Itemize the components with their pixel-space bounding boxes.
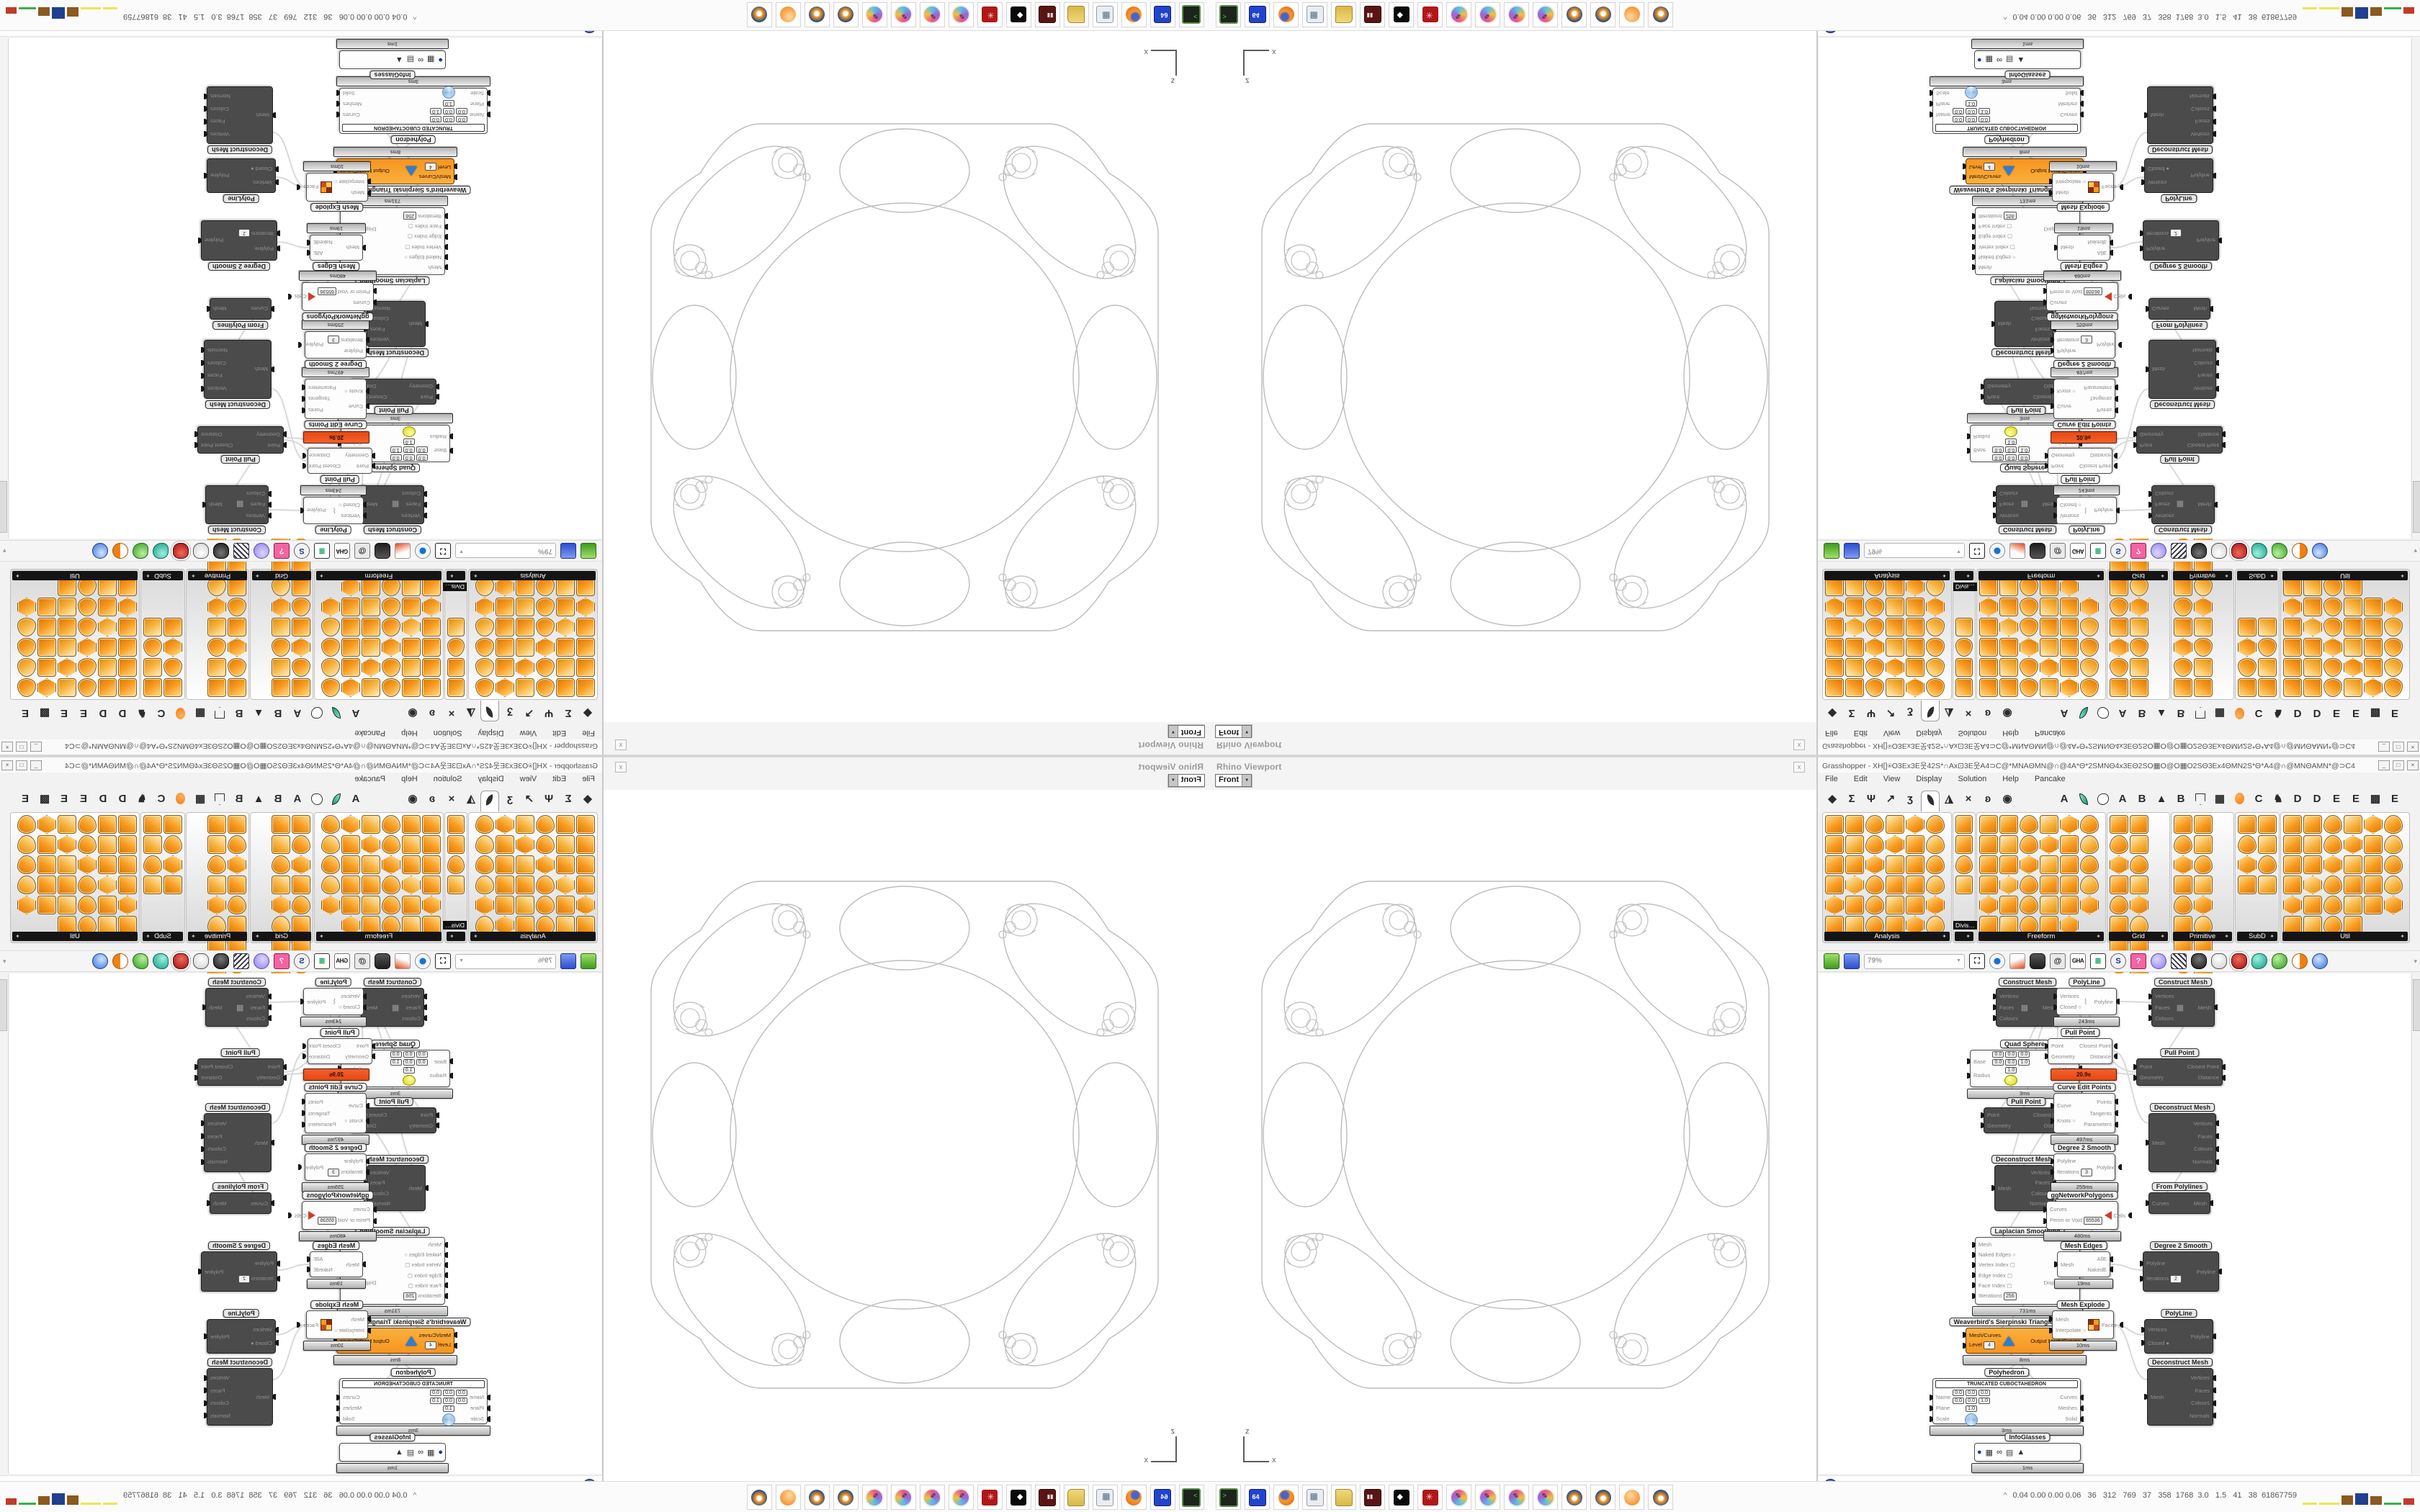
component-icon[interactable] (1926, 815, 1945, 834)
output-grip[interactable] (298, 1164, 302, 1170)
taskbar-app-blender[interactable] (833, 2, 859, 27)
component-icon[interactable] (143, 835, 162, 854)
component-body[interactable]: VerticesClosed ○⌇Polyline (2056, 988, 2117, 1015)
input-param[interactable]: Vertices (2155, 993, 2174, 999)
value-box[interactable]: 0.0 (403, 1059, 415, 1066)
component-icon[interactable] (292, 855, 310, 874)
component-body[interactable]: PointGeometryClosest PointDistance (308, 1038, 372, 1064)
component-icon[interactable] (272, 598, 290, 616)
output-param[interactable]: Colours (210, 1400, 229, 1406)
output-grip[interactable] (336, 91, 340, 96)
component-icon[interactable] (1906, 658, 1924, 677)
input-grip[interactable] (373, 1207, 377, 1212)
output-grip[interactable] (201, 347, 205, 353)
component-icon[interactable] (496, 638, 514, 657)
component-icon[interactable] (496, 815, 514, 834)
toolbar-overflow-grip[interactable]: ▾ (3, 547, 6, 555)
component-icon[interactable] (2040, 896, 2058, 914)
paint-pot-red-icon[interactable] (2231, 543, 2247, 559)
tab-surface[interactable] (480, 701, 499, 721)
tab-plugin-6[interactable]: B (230, 791, 248, 808)
input-grip[interactable] (1972, 213, 1976, 219)
value-box[interactable]: 1.0 (403, 1067, 415, 1074)
paint-pot-white-icon[interactable] (2211, 953, 2227, 969)
scrollbar-thumb[interactable] (2413, 979, 2420, 1031)
input-param[interactable]: Naked Edges ○ (404, 1251, 442, 1258)
tab-plugin-13[interactable]: D (94, 704, 112, 721)
polyhedron-type-dropdown[interactable]: TRUNCATED CUBOCTAHEDRON (342, 124, 485, 132)
viewport-canvas[interactable]: z x (604, 790, 1210, 1481)
preview-eye-icon[interactable] (415, 953, 431, 969)
value-box[interactable]: 1.0 (1978, 1398, 1990, 1404)
component-icon[interactable] (37, 855, 56, 874)
component-body[interactable]: MeshAllENakedE (310, 1251, 363, 1277)
component-icon[interactable] (341, 815, 360, 834)
taskbar-app-ballorange[interactable] (776, 1485, 801, 1510)
tab-plugin-13[interactable]: D (94, 791, 112, 808)
component-icon[interactable] (362, 855, 380, 874)
input-param[interactable]: Scale (1936, 90, 1950, 96)
output-param[interactable]: AllE (313, 250, 323, 256)
output-param[interactable]: Curves (2060, 112, 2077, 118)
component-icon[interactable] (118, 835, 137, 854)
component-icon[interactable] (118, 815, 137, 834)
component-icon[interactable] (2174, 658, 2192, 677)
taskbar-app-krita[interactable] (891, 2, 916, 27)
component-body[interactable]: CurveKnots ○PointsTangentsParameters (305, 379, 367, 419)
group-expand-icon[interactable]: ✦ (319, 571, 324, 580)
value-box[interactable]: 0.0 (430, 1390, 442, 1396)
tab-plugin-11[interactable]: ♞ (2269, 704, 2287, 721)
component-icon[interactable] (2110, 658, 2128, 677)
component-icon[interactable] (1865, 815, 1884, 834)
open-file-icon[interactable] (581, 543, 596, 559)
component-icon[interactable] (2323, 855, 2342, 874)
component-icon[interactable] (475, 618, 494, 636)
output-param[interactable]: Polyline (2191, 1333, 2210, 1340)
component-icon[interactable] (1955, 835, 1973, 854)
component-icon[interactable] (2364, 638, 2383, 657)
value-box[interactable]: 256 (2004, 1292, 2017, 1300)
component-icon[interactable] (1865, 896, 1884, 914)
value-box[interactable]: 1.0 (1966, 1405, 1977, 1412)
output-grip[interactable] (307, 250, 310, 256)
paint-pot-dark-icon[interactable] (213, 543, 229, 559)
component-body[interactable]: CurvesMesh (210, 1192, 272, 1214)
input-param[interactable]: Curve (349, 1102, 363, 1109)
input-param[interactable]: Point (421, 394, 433, 400)
input-grip[interactable] (423, 994, 427, 999)
component-icon[interactable] (576, 835, 595, 854)
value-box[interactable]: 0.0 (416, 1059, 428, 1066)
tab-sets[interactable]: Ψ (1863, 791, 1880, 808)
output-param[interactable]: Polyline (2097, 1164, 2115, 1171)
input-grip[interactable] (436, 1122, 439, 1128)
component-icon[interactable] (292, 638, 310, 657)
output-grip[interactable] (204, 94, 207, 99)
tab-plugin-2[interactable] (308, 704, 326, 721)
component-body[interactable]: PolylineIterations 2Polyline (2143, 220, 2219, 261)
mouse-teal-icon[interactable] (153, 543, 169, 559)
component-icon[interactable] (2080, 876, 2099, 894)
value-box[interactable]: 1.0 (1966, 100, 1977, 107)
component-icon[interactable] (228, 876, 246, 894)
named-view-icon[interactable]: @ (2050, 543, 2066, 559)
component-deconstruct-mesh[interactable]: Deconstruct MeshMeshVerticesFacesColours… (2148, 340, 2216, 399)
output-param[interactable]: Curves (2060, 1394, 2077, 1400)
tab-plugin-9[interactable] (2231, 791, 2248, 808)
input-param[interactable]: Vertices (341, 993, 360, 999)
paint-pot-white-icon[interactable] (2211, 543, 2227, 559)
input-grip[interactable] (2053, 503, 2057, 508)
output-grip[interactable] (2210, 306, 2213, 312)
component-icon[interactable] (576, 618, 595, 636)
component-icon[interactable] (2174, 835, 2192, 854)
input-param[interactable]: Scale (470, 90, 484, 96)
input-grip[interactable] (2146, 366, 2149, 372)
value-box[interactable]: 0.0 (456, 116, 467, 122)
report-doc-icon[interactable]: ≣ (2090, 953, 2106, 969)
input-param[interactable]: Vertices (2060, 993, 2079, 999)
input-grip[interactable] (363, 1004, 367, 1010)
taskbar-app-ink[interactable] (1006, 2, 1031, 27)
component-polyhedron[interactable]: PolyhedronTRUNCATED CUBOCTAHEDRONNamePla… (339, 88, 488, 134)
value-box[interactable]: 0.0 (2018, 454, 2030, 461)
input-param[interactable]: Polyline (255, 1260, 274, 1266)
taskbar-app-krita[interactable] (862, 2, 887, 27)
component-icon[interactable] (1886, 618, 1904, 636)
input-grip[interactable] (1991, 1185, 1995, 1191)
canvas-vertical-scrollbar[interactable] (2411, 973, 2420, 1474)
component-icon[interactable] (2303, 658, 2322, 677)
component-mesh-edges[interactable]: Mesh EdgesMeshAllENakedE19ms (310, 235, 363, 261)
component-icon[interactable] (2194, 835, 2213, 854)
component-icon[interactable] (2060, 618, 2079, 636)
value-box[interactable]: 0.0 (2018, 1051, 2030, 1058)
component-icon[interactable] (2283, 598, 2302, 616)
component-icon[interactable] (362, 598, 380, 616)
component-icon[interactable] (1825, 876, 1844, 894)
component-body[interactable]: MeshVerticesFacesColoursNormals (2147, 1368, 2213, 1426)
component-from-polylines[interactable]: From PolylinesCurvesMesh (210, 1192, 272, 1214)
input-param[interactable]: Mesh/Curves (1969, 1332, 2001, 1338)
component-icon[interactable] (475, 876, 494, 894)
input-param[interactable]: Geometry (345, 1053, 369, 1060)
output-grip[interactable] (2110, 250, 2113, 256)
component-icon[interactable] (556, 638, 575, 657)
value-box[interactable]: 0.0 (1992, 1051, 2004, 1058)
output-grip[interactable] (194, 432, 198, 438)
component-deconstruct-mesh[interactable]: Deconstruct MeshMeshVerticesFacesColours… (2148, 1113, 2216, 1172)
tab-plugin-5[interactable]: ▲ (2153, 791, 2170, 808)
group-expand-icon[interactable]: ✦ (145, 932, 151, 941)
output-param[interactable]: Solid (343, 90, 355, 96)
input-grip[interactable] (268, 1015, 272, 1021)
component-icon[interactable] (1906, 855, 1924, 874)
tab-transform[interactable]: ʚ (423, 704, 441, 721)
component-infoglasses[interactable]: InfoGlasses●▦∞▤▲1ms (339, 50, 446, 69)
component-icon[interactable] (2283, 618, 2302, 636)
component-icon[interactable] (2130, 678, 2148, 697)
output-param[interactable]: Normals (2190, 1413, 2210, 1419)
value-box[interactable]: 256 (2004, 212, 2017, 220)
output-param[interactable]: Normals (2190, 93, 2210, 99)
component-curve-edit-points[interactable]: Curve Edit PointsCurveKnots ○PointsTange… (305, 379, 367, 419)
component-icon[interactable] (1825, 855, 1844, 874)
output-grip[interactable] (2118, 1164, 2122, 1170)
input-grip[interactable] (1993, 491, 1996, 497)
polyhedron-type-dropdown[interactable]: TRUNCATED CUBOCTAHEDRON (1935, 1380, 2078, 1388)
input-grip[interactable] (366, 1158, 369, 1164)
input-param[interactable]: Radius (430, 1072, 447, 1079)
input-grip[interactable] (1993, 513, 1996, 518)
taskbar-app-ink[interactable] (1006, 1485, 1031, 1510)
component-body[interactable]: PolylineIterations 3Polyline (2053, 331, 2115, 359)
open-file-icon[interactable] (581, 953, 596, 969)
value-box[interactable]: 0.0 (403, 446, 415, 453)
component-body[interactable]: CurveKnots ○PointsTangentsParameters (2053, 379, 2115, 419)
component-icon[interactable] (2323, 598, 2342, 616)
input-grip[interactable] (366, 404, 369, 410)
balloon-icon[interactable] (2151, 953, 2166, 969)
component-icon[interactable] (2194, 876, 2213, 894)
tab-plugin-1[interactable] (2075, 704, 2092, 721)
component-construct-mesh[interactable]: Construct MeshVerticesFacesColours▦Mesh (205, 485, 269, 524)
output-param[interactable]: Polyline (2191, 173, 2210, 179)
component-icon[interactable] (207, 876, 226, 894)
scrollbar-thumb[interactable] (0, 481, 7, 533)
input-param[interactable]: Edge Index ▢ (408, 1272, 442, 1279)
input-grip[interactable] (366, 1118, 369, 1124)
palette-group-label[interactable]: Util✦ (12, 932, 138, 941)
component-polyline[interactable]: PolyLineVerticesClosed ○⌇Polyline243ms (303, 497, 364, 524)
output-param[interactable]: Points (2097, 1099, 2112, 1105)
component-icon[interactable] (576, 658, 595, 677)
component-icon[interactable] (1955, 815, 1973, 834)
tab-display[interactable]: ◉ (1999, 704, 2016, 721)
input-grip[interactable] (444, 1252, 448, 1258)
component-icon[interactable] (58, 815, 76, 834)
component-icon[interactable] (1979, 855, 1998, 874)
taskbar-app-krita[interactable] (862, 1485, 887, 1510)
component-icon[interactable] (2020, 658, 2038, 677)
component-icon[interactable] (2110, 855, 2128, 874)
output-param[interactable]: Meshes (343, 1405, 362, 1411)
component-icon[interactable] (2040, 658, 2058, 677)
input-param[interactable]: Base (434, 447, 447, 454)
ball-blue-icon[interactable] (92, 543, 108, 559)
input-grip[interactable] (1967, 1073, 1971, 1079)
input-grip[interactable] (444, 254, 448, 260)
input-param[interactable]: Faces (2155, 1004, 2169, 1011)
input-param[interactable]: Knots ○ (344, 1117, 363, 1124)
component-body[interactable]: CurvesPerim or Void 65536Cells (302, 282, 374, 311)
component-icon[interactable] (1845, 855, 1864, 874)
component-icon[interactable] (163, 855, 182, 874)
palette-group-label[interactable]: Analysis✦ (1824, 932, 1950, 941)
input-grip[interactable] (2051, 1169, 2054, 1175)
tab-plugin-1[interactable] (328, 791, 345, 808)
component-icon[interactable] (475, 658, 494, 677)
component-pull-point[interactable]: Pull PointPointGeometryClosest PointDist… (2048, 448, 2112, 474)
input-param[interactable]: Mesh (409, 321, 422, 328)
component-icon[interactable] (2130, 598, 2148, 616)
component-icon[interactable] (536, 598, 555, 616)
taskbar-app-krita[interactable] (920, 2, 945, 27)
help-box-icon[interactable]: ? (274, 953, 290, 969)
value-box[interactable]: 0.0 (443, 116, 454, 122)
palette-group-label[interactable]: Primitive✦ (2173, 571, 2232, 580)
input-grip[interactable] (362, 245, 366, 251)
palette-group-label[interactable]: ✦ (1955, 932, 1973, 941)
sketch-pen-icon[interactable] (395, 543, 411, 559)
component-curve-edit-points[interactable]: Curve Edit PointsCurveKnots ○PointsTange… (2053, 1093, 2115, 1133)
group-expand-icon[interactable]: ✦ (319, 932, 324, 941)
palette-group-label[interactable]: Util✦ (12, 571, 138, 580)
input-param[interactable]: Point (268, 442, 280, 449)
grasshopper-canvas[interactable]: Construct MeshVerticesFacesColours▦MeshQ… (9, 38, 601, 539)
component-pull-point[interactable]: Pull PointPointGeometryClosest PointDist… (2048, 1038, 2112, 1064)
input-grip[interactable] (1972, 244, 1976, 250)
component-icon[interactable] (576, 598, 595, 616)
input-param[interactable]: Vertex Index ▢ (405, 1261, 442, 1268)
component-icon[interactable] (37, 876, 56, 894)
menu-item-display[interactable]: Display (1916, 773, 1942, 786)
component-pull-point[interactable]: Pull PointPointGeometryClosest PointDist… (197, 426, 284, 454)
component-icon[interactable] (382, 658, 400, 677)
ball-orange-icon[interactable] (2292, 543, 2308, 559)
component-deconstruct-mesh[interactable]: Deconstruct MeshMeshVerticesFacesColours… (207, 86, 273, 144)
tab-plugin-17[interactable]: E (2386, 791, 2403, 808)
component-icon[interactable] (447, 678, 465, 697)
ball-blue-icon[interactable] (92, 953, 108, 969)
component-icon[interactable] (516, 896, 534, 914)
output-param[interactable]: Distance (309, 1053, 330, 1060)
input-param[interactable]: Geometry (256, 1074, 280, 1081)
value-box[interactable]: 0.0 (1966, 1390, 1977, 1396)
output-param[interactable]: Faces (2195, 118, 2210, 125)
palette-group-label[interactable]: Freeform✦ (1978, 571, 2104, 580)
output-param[interactable]: Distance (201, 431, 222, 438)
component-icon[interactable] (447, 658, 465, 677)
component-icon[interactable] (2258, 638, 2277, 657)
component-icon[interactable] (1979, 896, 1998, 914)
tab-plugin-9[interactable] (172, 704, 189, 721)
component-construct-mesh[interactable]: Construct MeshVerticesFacesColours▦Mesh (361, 988, 424, 1027)
tab-plugin-15[interactable]: E (2347, 704, 2365, 721)
input-grip[interactable] (2146, 306, 2149, 312)
output-grip[interactable] (198, 238, 202, 243)
input-grip[interactable] (487, 112, 490, 118)
output-grip[interactable] (2222, 1064, 2226, 1070)
tab-params[interactable]: ◆ (579, 704, 596, 721)
input-param[interactable]: Edge Index ▢ (408, 233, 442, 240)
component-icon[interactable] (1926, 876, 1945, 894)
output-param[interactable]: Polyline (205, 238, 223, 244)
input-param[interactable]: Plane (1936, 1405, 1950, 1411)
input-grip[interactable] (423, 502, 427, 508)
input-grip[interactable] (363, 994, 367, 999)
component-icon[interactable] (2020, 678, 2038, 697)
palette-group-label[interactable]: Grid✦ (252, 932, 311, 941)
component-icon[interactable] (2238, 658, 2257, 677)
output-grip[interactable] (201, 360, 205, 366)
output-param[interactable]: Solid (343, 1416, 355, 1422)
tab-plugin-4[interactable]: B (2133, 791, 2151, 808)
palette-group-label[interactable]: Grid✦ (252, 571, 311, 580)
input-param[interactable]: Geometry (409, 383, 433, 390)
component-icon[interactable] (2174, 896, 2192, 914)
output-param[interactable]: Colours (2191, 106, 2210, 112)
tray-collapse-arrow[interactable]: ^ (413, 1492, 417, 1500)
component-icon[interactable] (2080, 638, 2099, 657)
input-grip[interactable] (1930, 112, 1933, 118)
component-icon[interactable] (2110, 815, 2128, 834)
output-grip[interactable] (2114, 453, 2117, 459)
input-param[interactable]: Point (357, 463, 369, 469)
component-deconstruct-mesh[interactable]: Deconstruct MeshMeshVerticesFacesColours… (2147, 86, 2213, 144)
output-grip[interactable] (201, 386, 205, 392)
component-icon[interactable] (341, 598, 360, 616)
output-param[interactable]: Normals (207, 1158, 228, 1165)
output-grip[interactable] (2215, 1120, 2219, 1126)
component-icon[interactable] (98, 598, 117, 616)
component-icon[interactable] (362, 618, 380, 636)
input-param[interactable]: Iterations 3 (2057, 1169, 2092, 1176)
output-param[interactable]: Faces (210, 1387, 225, 1394)
component-icon[interactable] (2174, 855, 2192, 874)
component-icon[interactable] (321, 815, 340, 834)
component-icon[interactable] (2283, 658, 2302, 677)
palette-group-label[interactable]: Grid✦ (2109, 571, 2168, 580)
output-param[interactable]: Points (2097, 407, 2112, 413)
input-param[interactable]: Perim or Void 65536 (318, 1217, 370, 1225)
group-expand-icon[interactable]: ✦ (255, 571, 260, 580)
output-param[interactable]: Tangents (308, 396, 330, 402)
component-icon[interactable] (1865, 876, 1884, 894)
output-grip[interactable] (2128, 294, 2132, 300)
input-grip[interactable] (423, 1004, 427, 1010)
tab-plugin-3[interactable]: A (2114, 791, 2131, 808)
component-icon[interactable] (2303, 598, 2322, 616)
tab-surface[interactable] (480, 791, 499, 811)
component-icon[interactable] (2060, 815, 2079, 834)
value-box[interactable]: 0.0 (443, 1398, 454, 1404)
component-icon[interactable] (207, 658, 226, 677)
output-grip[interactable] (207, 1200, 210, 1206)
component-icon[interactable] (1906, 618, 1924, 636)
gha-loader-icon[interactable]: GHA (2070, 543, 2086, 559)
tab-plugin-9[interactable] (2231, 704, 2248, 721)
taskbar-app-terminal[interactable] (1179, 2, 1204, 27)
value-box[interactable]: 0.0 (1978, 1390, 1990, 1396)
value-box[interactable]: 2 (238, 229, 250, 237)
component-icon[interactable] (402, 598, 421, 616)
output-grip[interactable] (307, 1256, 310, 1262)
component-body[interactable]: PolylineIterations 3Polyline (305, 331, 367, 359)
input-param[interactable]: Mesh (2152, 366, 2165, 373)
tab-plugin-14[interactable]: E (75, 704, 92, 721)
component-body[interactable]: MeshVerticesFacesColoursNormals (207, 86, 273, 144)
input-grip[interactable] (2049, 190, 2053, 196)
tab-plugin-11[interactable]: ♞ (133, 704, 151, 721)
tab-plugin-7[interactable] (211, 704, 228, 721)
scrollbar-thumb[interactable] (0, 979, 7, 1031)
component-icon[interactable] (1999, 618, 2018, 636)
input-grip[interactable] (454, 163, 457, 169)
input-grip[interactable] (2051, 389, 2054, 395)
input-param[interactable]: Geometry (256, 431, 280, 438)
